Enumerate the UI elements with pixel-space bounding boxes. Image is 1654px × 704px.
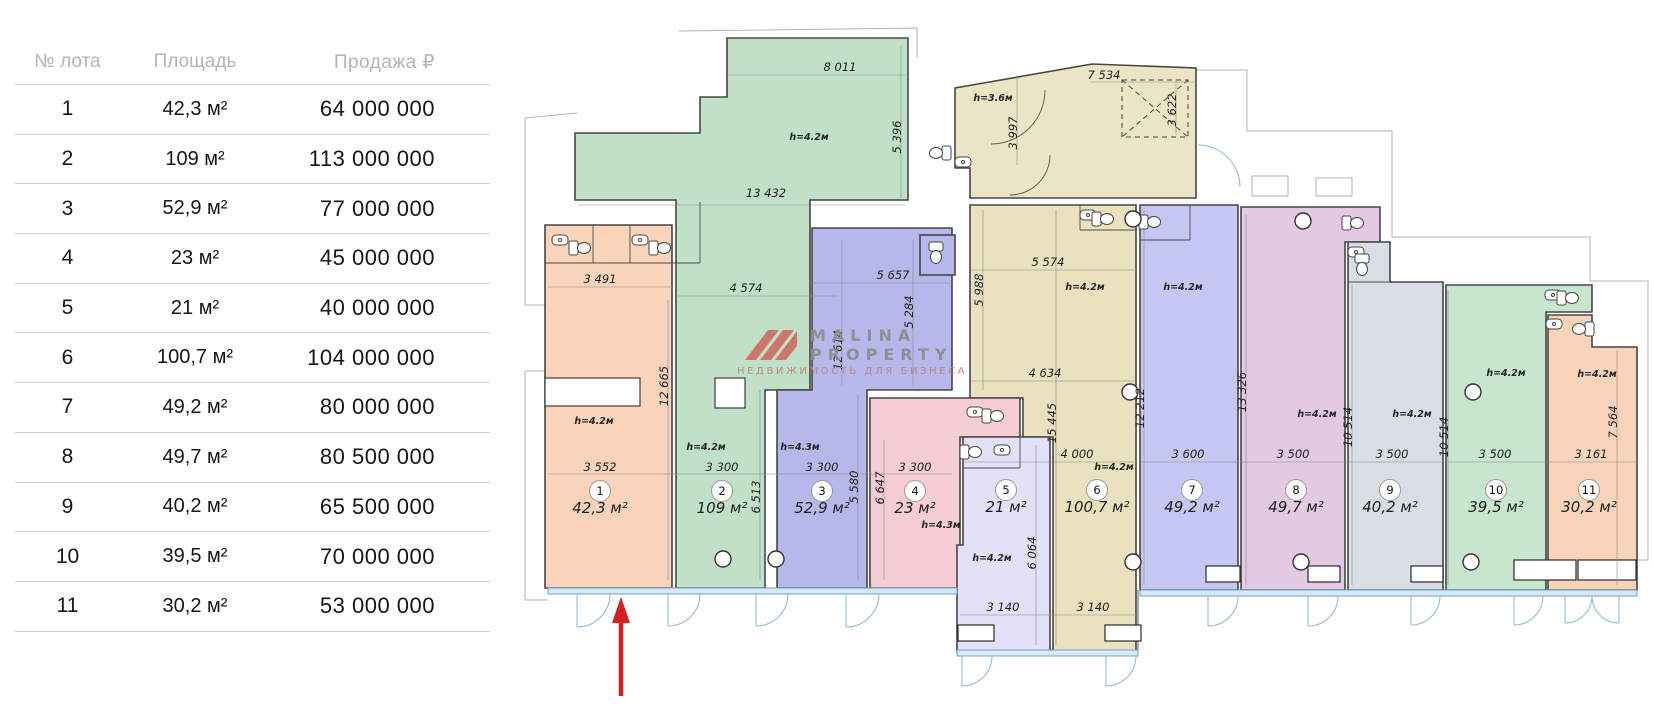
- dim-u5-v: 6 064: [1025, 537, 1039, 570]
- dim-u4-v: 6 647: [873, 471, 887, 505]
- dim-hall-bottom: 13 432: [746, 186, 786, 200]
- unit-10-height: h=4.2м: [1486, 368, 1526, 379]
- dim-u8-v: 13 326: [1235, 372, 1249, 412]
- dim-entry-top: 7 534: [1088, 68, 1121, 82]
- unit-11-height: h=4.2м: [1577, 369, 1617, 380]
- dim-u7-v: 12 212: [1133, 388, 1147, 428]
- dim-u9-v: 10 514: [1341, 407, 1355, 447]
- unit-10-number: 10: [1489, 483, 1504, 497]
- unit-4-area: 23 м²: [894, 499, 935, 517]
- dim-hall-right: 5 396: [890, 121, 904, 154]
- unit-9-area: 40,2 м²: [1362, 498, 1418, 516]
- unit-6-number: 6: [1093, 483, 1100, 497]
- dim-u6-v1: 5 988: [972, 274, 986, 307]
- unit-6-width: 4 000: [1061, 447, 1094, 461]
- unit-7-width: 3 600: [1172, 447, 1205, 461]
- unit-1-pointer-arrow: [612, 597, 630, 696]
- unit-8-number: 8: [1292, 483, 1299, 497]
- watermark-tagline: НЕДВИЖИМОСТЬ ДЛЯ БИЗНЕСА: [737, 366, 967, 377]
- unit-5-number: 5: [1002, 483, 1009, 497]
- unit-4-height: h=4.3м: [921, 520, 961, 531]
- dim-u3-v1: 5 284: [902, 296, 916, 329]
- unit-9-height: h=4.2м: [1392, 409, 1432, 420]
- unit-2-width: 3 300: [706, 460, 739, 474]
- unit-6-height: h=4.2м: [1094, 462, 1134, 473]
- dim-u6-height2: h=4.2м: [1065, 282, 1105, 293]
- dim-hall-height: h=4.2м: [789, 132, 829, 143]
- unit-8-area: 49,7 м²: [1268, 498, 1324, 516]
- dim-u6-top: 5 574: [1032, 255, 1065, 269]
- dim-u10-v: 10 514: [1437, 417, 1451, 457]
- unit-3-height: h=4.3м: [780, 442, 820, 453]
- unit-7-height: h=4.2м: [1163, 282, 1203, 293]
- dim-u2-top: 4 574: [730, 281, 763, 295]
- unit-7-shape: [1140, 205, 1238, 590]
- unit-8-height: h=4.2м: [1297, 409, 1337, 420]
- dim-entry-height: h=3.6м: [973, 93, 1013, 104]
- dim-u5-bottom: 3 140: [987, 600, 1020, 614]
- unit-2-number: 2: [718, 484, 725, 498]
- dim-entry-v2: 3 622: [1165, 94, 1179, 127]
- unit-2-height: h=4.2м: [686, 442, 726, 453]
- dim-entry-v1: 3 997: [1006, 116, 1020, 150]
- entry-hall-shape: [955, 64, 1196, 198]
- unit-11-area: 30,2 м²: [1561, 498, 1617, 516]
- unit-3-area: 52,9 м²: [794, 499, 850, 517]
- unit-2-area: 109 м²: [697, 499, 748, 517]
- unit-3-number: 3: [818, 484, 825, 498]
- offer-sheet: № лота Площадь Продажа ₽ 1 42,3 м² 64 00…: [0, 0, 1654, 704]
- unit-3-width: 3 300: [806, 460, 839, 474]
- unit-7-number: 7: [1188, 483, 1195, 497]
- watermark-brand-top: MALINA: [810, 326, 916, 345]
- unit-11-width: 3 161: [1575, 447, 1608, 461]
- unit-10-area: 39,5 м²: [1468, 498, 1524, 516]
- dim-u6-v2: 15 445: [1045, 403, 1059, 443]
- watermark-brand-bottom: PROPERTY: [810, 345, 952, 364]
- unit-7-area: 49,2 м²: [1164, 498, 1220, 516]
- unit-1-area: 42,3 м²: [572, 499, 628, 517]
- unit-1-width: 3 552: [584, 460, 617, 474]
- unit-1-number: 1: [596, 484, 603, 498]
- unit-6-area: 100,7 м²: [1064, 498, 1129, 516]
- unit-9-number: 9: [1386, 483, 1393, 497]
- unit-8-width: 3 500: [1277, 447, 1310, 461]
- unit-4-number: 4: [911, 484, 918, 498]
- dim-u6-mid: 4 634: [1029, 366, 1062, 380]
- dim-u11-v: 7 564: [1606, 406, 1620, 439]
- unit-10-width: 3 500: [1479, 447, 1512, 461]
- dim-u2-v: 6 513: [749, 481, 763, 514]
- unit-1-height: h=4.2м: [574, 416, 614, 427]
- floor-plan: 8 011 h=4.2м 5 396 13 432 7 534 h=3.6м 3…: [0, 0, 1654, 704]
- unit-11-number: 11: [1582, 483, 1597, 497]
- unit-9-width: 3 500: [1376, 447, 1409, 461]
- dim-u3-top: 5 657: [877, 268, 911, 282]
- unit-5-height: h=4.2м: [972, 553, 1012, 564]
- dim-u1-top: 3 491: [584, 272, 617, 286]
- dim-hall-top: 8 011: [824, 60, 857, 74]
- unit-5-area: 21 м²: [985, 498, 1026, 516]
- dim-u1-v: 12 665: [657, 366, 671, 406]
- dim-u6-bottom: 3 140: [1077, 600, 1110, 614]
- unit-4-width: 3 300: [899, 460, 932, 474]
